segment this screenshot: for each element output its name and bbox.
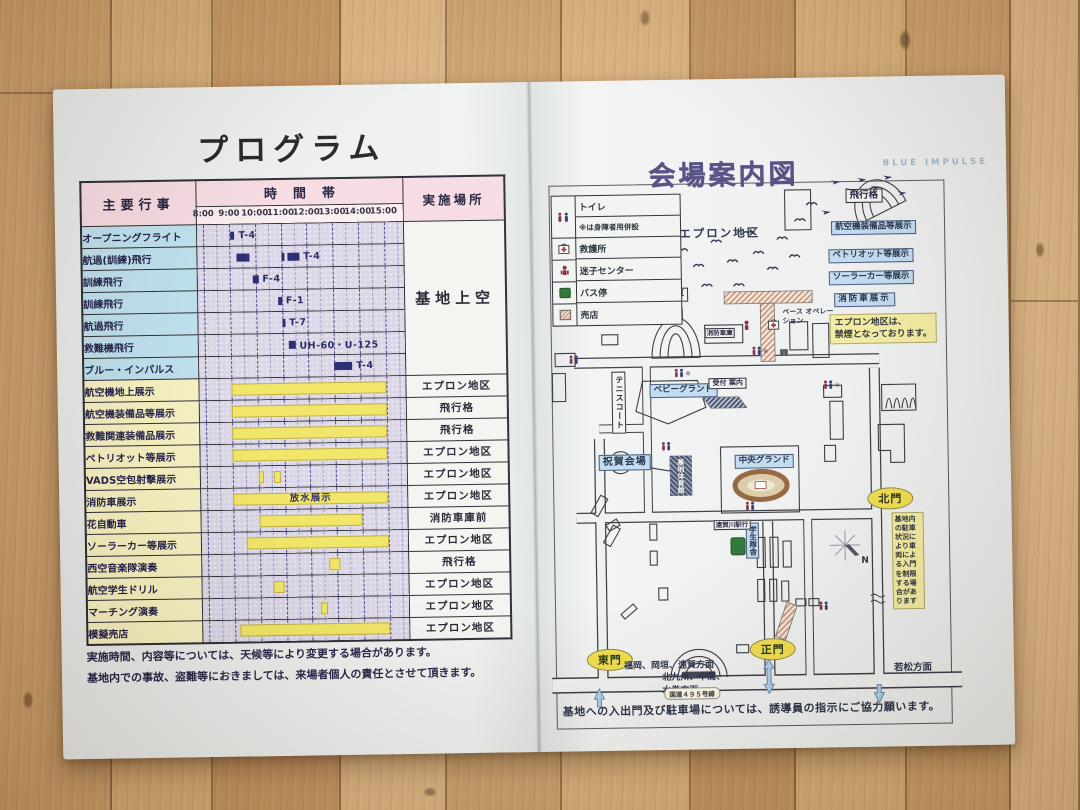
gridline [221,511,222,532]
gridline [210,621,211,642]
ongagawa-station-bus-label: 遠賀川駅行 [714,520,751,531]
gridline [398,288,399,309]
time-grid-cell: UH-60・U-125 [198,332,405,357]
event-label: 救難機飛行 [83,335,199,359]
gridline [255,246,256,267]
location-cell: エプロン地区 [410,616,512,640]
lost-child-icon [553,260,577,282]
gridline [362,509,363,530]
gridline [323,465,324,486]
gridline [229,247,230,268]
gridline [230,269,231,290]
gridline [284,466,285,487]
flight-time-bar [253,275,258,283]
gridline [399,354,400,375]
gridline [282,290,283,311]
svg-text:※: ※ [834,381,840,389]
gridline [234,511,235,532]
gridline [220,445,221,466]
gridline [306,224,307,245]
celebration-venue-label: 祝賀会場 [599,454,651,470]
gridline [260,576,261,597]
gridline [269,334,270,355]
gridline [286,554,287,575]
program-page: プログラム 主要行事 時間帯 実施場所 8:009:0010:0011:0012… [53,82,539,759]
gridline [403,618,404,639]
event-label: 訓練飛行 [82,269,198,293]
gridline [205,357,206,378]
program-table: 主要行事 時間帯 実施場所 8:009:0010:0011:0012:0013:… [79,174,512,645]
gridline [235,599,236,620]
gridline [363,575,364,596]
legend-lost-child: 迷子センター [577,259,681,282]
location-cell: エプロン地区 [407,440,509,464]
flight-time-bar [334,361,352,369]
gridline [359,311,360,332]
gridline [204,247,205,268]
gridline [346,289,347,310]
gridline [325,575,326,596]
gridline [321,355,322,376]
gridline [207,467,208,488]
gridline [364,597,365,618]
gridline [295,334,296,355]
gridline [386,398,387,419]
gridline [217,247,218,268]
time-grid-cell [200,441,407,466]
gridline [272,466,273,487]
gridline [346,267,347,288]
compass-rose: N [830,530,869,567]
gridline [371,267,372,288]
event-label: 訓練飛行 [82,291,198,315]
time-tick: 12:00 [293,207,320,217]
gridline [400,420,401,441]
time-grid-cell [202,573,409,598]
gridline [219,379,220,400]
gridline [299,576,300,597]
time-grid-cell [199,398,406,423]
gridline [333,311,334,332]
gridline [243,291,244,312]
gridline [338,597,339,618]
gridline [350,553,351,574]
program-notes: 実施時間、内容等については、天候等により変更する場合があります。 基地内での事故… [87,642,528,691]
event-label: 西空音楽隊演奏 [86,555,202,579]
column-header-time-band: 時間帯 [196,177,403,207]
time-grid-cell [200,420,407,445]
event-time-bar [330,558,340,570]
gridline [219,401,220,422]
gridline [336,465,337,486]
flight-time-bar [278,296,282,304]
athletics-track [735,471,787,500]
gridline [217,291,218,312]
location-cell: エプロン地区 [409,594,511,618]
gridline [359,267,360,288]
event-label: 花自動車 [85,511,201,535]
flight-time-bar [236,253,249,261]
gridline [230,291,231,312]
gridline [333,267,334,288]
toilet-icon [552,196,577,238]
location-cell: 消防車庫前 [408,506,510,530]
gridline [268,246,269,267]
event-time-bar [241,623,391,637]
time-grid-cell: T-4 [199,354,406,379]
first-aid-map-icon [769,320,779,330]
gridline [269,290,270,311]
gridline [299,554,300,575]
gridline [349,465,350,486]
gridline [401,486,402,507]
gridline [396,222,397,243]
gridline [363,553,364,574]
base-gym-label: 基地体育館 [670,456,693,496]
event-label: ソーラーカー等展示 [86,533,202,557]
gridline [208,533,209,554]
location-cell: エプロン地区 [408,528,510,552]
gridline [319,223,320,244]
event-time-bar [273,580,285,592]
gridline [235,621,236,642]
gridline [299,598,300,619]
svg-text:※: ※ [685,370,691,378]
booklet: プログラム 主要行事 時間帯 実施場所 8:009:0010:0011:0012… [53,75,1015,760]
location-cell-merged: 基地上空 [403,220,507,376]
gridline [297,466,298,487]
gridline [256,290,257,311]
gridline [332,223,333,244]
location-cell: 飛行格 [406,396,508,420]
apron-area-label: エプロン地区 [679,224,760,241]
gridline [385,288,386,309]
gridline [397,266,398,287]
gridline [362,465,363,486]
column-header-location: 実施場所 [403,175,505,221]
wakamatsu-direction: 若松方面 [894,659,932,674]
gridline [231,313,232,334]
gridline [234,555,235,576]
gridline [312,553,313,574]
equipment-display-label: 航空機装備品等展示 [831,220,916,235]
gridline [399,398,400,419]
gridline [243,269,244,290]
gridline [221,533,222,554]
gridline [307,268,308,289]
gridline [400,464,401,485]
central-ground-label: 中央グランド [735,454,794,469]
route-495-label: 国道４９５号線 [664,687,720,700]
gridline [270,356,271,377]
gridline [257,356,258,377]
aircraft-tag: T-7 [289,317,306,328]
gridline [282,334,283,355]
gridline [219,423,220,444]
gridline [286,576,287,597]
floor-plank [1011,0,1080,810]
gridline [385,310,386,331]
gridline [321,311,322,332]
time-grid-cell [201,529,408,554]
gridline [398,310,399,331]
blue-impulse-watermark: BLUE IMPULSE [883,157,989,169]
base-operation-label: ベース オペレーション [782,307,836,325]
gridline [286,598,287,619]
gridline [268,224,269,245]
gridline [296,356,297,377]
time-grid-cell [203,617,410,642]
location-cell: エプロン地区 [408,484,510,508]
gridline [312,575,313,596]
gridline [246,467,247,488]
gridline [388,530,389,551]
event-label: 航過飛行 [82,313,198,337]
gridline [273,554,274,575]
gridline [401,508,402,529]
aircraft-tag: T-4 [238,229,255,240]
time-grid-cell: T-4 [197,244,404,269]
patriot-display-label: ペトリオット等展示 [828,248,913,263]
flight-time-bar [281,252,284,260]
baby-ground-label: ベビーグランド [649,383,717,398]
event-time-bar [232,381,387,395]
gridline [372,311,373,332]
gridline [209,577,210,598]
aircraft-tag: F-4 [262,273,280,284]
gridline [400,442,401,463]
time-grid-cell: T-7 [198,310,405,335]
no-smoking-notice: エプロン地区は、 禁煙となっております。 [829,313,937,345]
gridline [398,332,399,353]
event-label: 航過(訓練)飛行 [81,247,197,271]
gridline [217,269,218,290]
gridline [234,533,235,554]
event-label: 航空機装備品等展示 [84,401,200,425]
map-legend: トイレ ※は身障者用併設 救護所 迷子センター バス停 売店 [551,194,683,327]
event-time-bar [232,425,387,439]
event-time-bar [232,403,387,417]
map-page: 会場案内図 BLUE IMPULSE トイレ ※は身障者用併設 救護所 迷子セン… [529,75,1015,752]
solar-car-display-label: ソーラーカー等展示 [829,270,914,285]
bar-inline-text: 放水展示 [234,492,387,504]
gridline [401,530,402,551]
gridline [205,313,206,334]
gridline [385,332,386,353]
column-header-events: 主要行事 [80,180,196,226]
gridline [399,376,400,397]
gridline [204,291,205,312]
flight-time-bar [282,318,285,326]
event-label: オープニングフライト [81,225,197,249]
legend-first-aid: 救護所 [576,237,680,260]
event-time-bar [259,513,362,527]
program-title: プログラム [53,120,530,172]
gridline [261,598,262,619]
gridline [320,289,321,310]
time-grid-cell [202,551,409,576]
gridline [206,423,207,444]
time-grid-cell: T-4 [196,222,403,247]
gridline [397,244,398,265]
gridline [243,313,244,334]
gridline [205,335,206,356]
event-label: 救難関連装備品展示 [84,423,200,447]
gridline [384,266,385,287]
gridline [294,268,295,289]
location-cell: エプロン地区 [406,374,508,398]
aircraft-tag: T-4 [356,360,373,371]
gridline [208,511,209,532]
fire-truck-display-label: 消防車展示 [834,292,895,307]
event-time-bar [274,470,281,482]
event-time-bar [247,535,389,549]
gridline [218,357,219,378]
location-cell: エプロン地区 [409,572,511,596]
gridline [351,597,352,618]
gridline [281,268,282,289]
time-tick: 9:00 [218,209,239,219]
time-grid-cell: F-4 [197,266,404,291]
map-title: 会場案内図 [648,152,799,193]
event-time-bar [259,471,264,483]
first-aid-icon [552,238,576,260]
time-tick: 15:00 [370,206,397,216]
gridline [345,245,346,266]
event-time-bar: 放水展示 [233,491,388,505]
gridline [222,599,223,620]
gridline [233,467,234,488]
plank-joint [1011,300,1078,302]
gridline [332,245,333,266]
gridline [371,223,372,244]
time-grid-cell [201,507,408,532]
event-label: マーチング演奏 [87,599,203,623]
gridline [389,574,390,595]
gridline [209,599,210,620]
aircraft-tag: F-1 [286,295,304,306]
fire-garage-label: 消防車庫 [705,328,735,339]
bus-stop-square [731,538,745,555]
gridline [206,401,207,422]
flight-time-bar [288,252,300,260]
compass-n-label: N [861,556,869,566]
bus-stop-icon [553,282,577,304]
time-tick: 8:00 [193,209,214,219]
gridline [203,225,204,246]
gridline [402,596,403,617]
gridline [218,335,219,356]
gridline [372,289,373,310]
gridline [386,354,387,375]
event-label: 航空学生ドリル [86,577,202,601]
gridline [222,621,223,642]
gridline [206,379,207,400]
gridline [384,222,385,243]
gridline [269,312,270,333]
event-time-bar [233,447,388,461]
gridline [221,555,222,576]
event-label: 航空機地上展示 [83,379,199,403]
gridline [338,575,339,596]
parking-restriction-note: 基地内の駐車状況により車両による入門を制限する場合があります [892,512,926,609]
event-label: 模擬売店 [87,621,203,645]
gridline [308,356,309,377]
time-grid-cell: 放水展示 [201,485,408,510]
gridline [402,574,403,595]
legend-toilet: トイレ [576,195,680,218]
gridline [256,312,257,333]
gridline [375,508,376,529]
legend-shop: 売店 [577,303,681,326]
gridline [281,224,282,245]
gridline [376,574,377,595]
legend-bus-stop: バス停 [577,281,681,304]
svg-text:※: ※ [763,347,769,355]
gridline [375,464,376,485]
gridline [384,244,385,265]
gridline [220,467,221,488]
gridline [235,577,236,598]
gridline [204,269,205,290]
time-grid-cell [200,463,407,488]
event-label: ブルー・インパルス [83,357,199,381]
gridline [218,313,219,334]
gridline [257,334,258,355]
gridline [246,511,247,532]
aircraft-tag: T-4 [303,250,320,261]
gridline [248,577,249,598]
gridline [346,311,347,332]
gridline [244,357,245,378]
gridline [260,554,261,575]
time-tick: 13:00 [318,207,345,217]
gridline [388,486,389,507]
gridline [274,598,275,619]
gridline [388,508,389,529]
gridline [312,597,313,618]
event-time-bar [321,602,328,614]
note-weather: 実施時間、内容等については、天候等により変更する場合があります。 [87,642,527,665]
gridline [351,575,352,596]
flight-time-bar [231,231,235,239]
gridline [208,489,209,510]
gridline [359,289,360,310]
aircraft-tag: UH-60・U-125 [299,336,379,351]
gridline [358,245,359,266]
gridline [220,489,221,510]
gridline [386,376,387,397]
time-grid-cell: F-1 [197,288,404,313]
note-responsibility: 基地内での事故、盗難等におきましては、来場者個人の責任とさせて頂きます。 [87,663,527,686]
gridline [247,555,248,576]
gridline [310,466,311,487]
reception-label: 受付 案内 [708,378,747,390]
time-tick: 11:00 [267,208,294,218]
gridline [244,335,245,356]
gridline [389,552,390,573]
gridline [231,335,232,356]
location-cell: 飛行格 [409,550,511,574]
gridline [376,552,377,573]
gridline [293,224,294,245]
gridline [248,599,249,620]
gridline [207,445,208,466]
gridline [333,289,334,310]
gridline [222,577,223,598]
gridline [345,223,346,244]
gridline [387,442,388,463]
